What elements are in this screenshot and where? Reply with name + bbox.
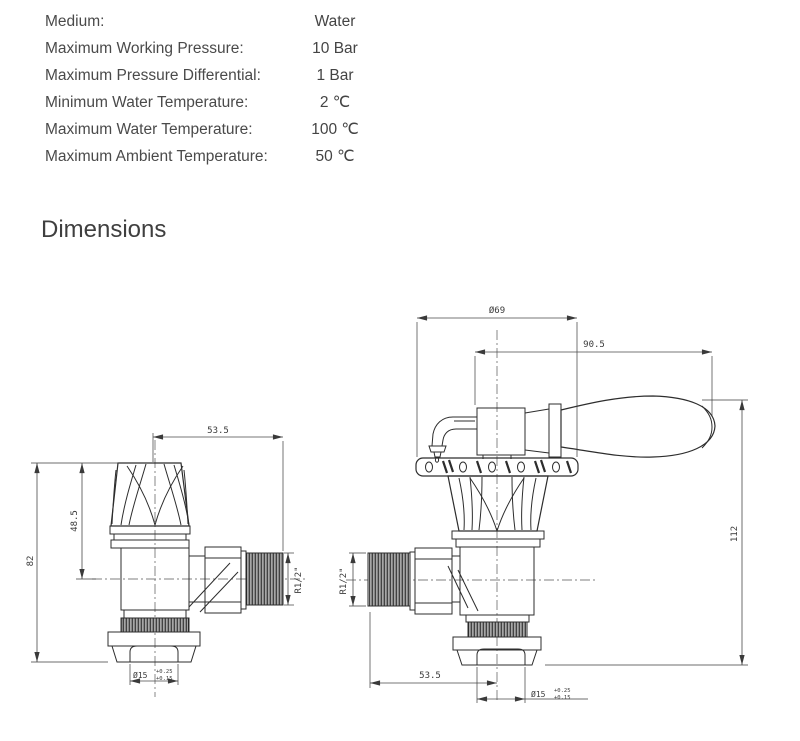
dim-label-tail-tol-upper: +0.25 bbox=[156, 669, 173, 675]
threaded-tail bbox=[246, 553, 283, 605]
handle-collar bbox=[549, 404, 561, 457]
dim-label-overall-height: 112 bbox=[730, 526, 740, 542]
dim-label-thread-size: R1/2" bbox=[294, 566, 304, 593]
dim-overall-height: 112 bbox=[545, 400, 748, 665]
dim-overall-height: 82 bbox=[26, 463, 119, 662]
dim-tail-diameter: Ø15 +0.25 +0.15 bbox=[130, 664, 178, 685]
handle-bulb bbox=[561, 396, 715, 457]
spindle-block bbox=[477, 408, 525, 455]
dim-label-bottom-width: 53.5 bbox=[419, 671, 441, 681]
spout bbox=[429, 417, 477, 462]
left-valve-drawing: 53.5 82 48.5 R1/2" bbox=[26, 426, 307, 697]
dim-label-top-width: 53.5 bbox=[207, 426, 229, 436]
dim-thread-size: R1/2" bbox=[339, 553, 366, 606]
dimensions-drawing: 53.5 82 48.5 R1/2" bbox=[0, 0, 800, 741]
dim-handle-length: 90.5 bbox=[475, 340, 712, 417]
dim-label-flange-diameter: Ø69 bbox=[489, 305, 505, 316]
dim-label-overall-height: 82 bbox=[26, 556, 36, 567]
right-valve-drawing: Ø69 90.5 112 R1/2" bbox=[339, 305, 748, 703]
dim-label-head-height: 48.5 bbox=[70, 510, 80, 532]
lever-handle bbox=[429, 396, 715, 462]
dim-label-tail-diameter: Ø15 bbox=[531, 689, 546, 699]
compression-nut bbox=[108, 610, 200, 662]
valve-body bbox=[448, 547, 534, 615]
dim-label-tail-tol-upper: +0.25 bbox=[554, 688, 571, 694]
dim-label-tail-tol-lower: +0.15 bbox=[156, 676, 173, 682]
union-nut bbox=[205, 547, 246, 613]
dim-top-width: 53.5 bbox=[153, 426, 283, 551]
dim-label-thread-size: R1/2" bbox=[339, 567, 349, 594]
datasheet-page: Medium: Water Maximum Working Pressure: … bbox=[0, 0, 800, 741]
union-nut bbox=[410, 548, 452, 614]
dim-label-tail-diameter: Ø15 bbox=[133, 670, 148, 680]
valve-head bbox=[110, 463, 190, 548]
dim-tail-diameter: Ø15 +0.25 +0.15 bbox=[477, 667, 588, 703]
dim-label-tail-tol-lower: +0.15 bbox=[554, 695, 571, 701]
threaded-tail bbox=[368, 553, 410, 606]
dim-head-height: 48.5 bbox=[70, 463, 96, 579]
dim-label-handle-length: 90.5 bbox=[583, 340, 605, 350]
valve-head bbox=[448, 476, 548, 547]
